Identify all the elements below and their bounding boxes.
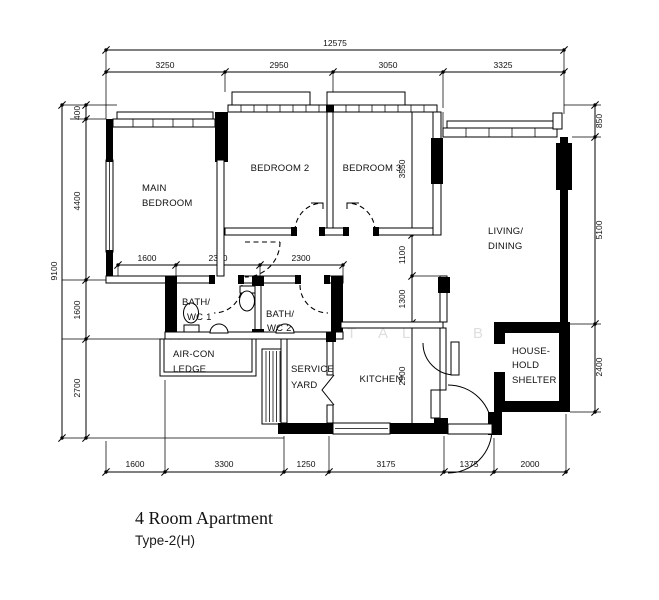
door-arc-entrance-upper [448,385,492,429]
window-band-living [443,128,557,137]
dim-left-1: 400 [72,106,82,120]
door-arc-bath2 [300,285,328,313]
floorplan-svg: 12575 3250 2950 3050 3325 9100 400 4400 … [0,0,659,600]
window-sill-main [117,112,213,119]
window-band-main [113,119,215,127]
room-label-bath-wc-1: WC 1 [187,312,212,323]
dim-bottom-3: 1250 [297,459,316,469]
room-label-bedroom-2: BEDROOM 2 [251,163,310,174]
room-label-household-shelter: HOUSE- [512,346,550,357]
dim-top-4: 3325 [494,60,513,70]
dim-bottom-4: 3175 [377,459,396,469]
door-leaf-entrance [448,424,492,434]
title-block: 4 Room Apartment Type-2(H) [135,508,273,548]
dim-inner-1: 1600 [138,253,157,263]
dim-left-2: 4400 [72,191,82,210]
floorplan-page: 12575 3250 2950 3050 3325 9100 400 4400 … [0,0,659,600]
dim-top-1: 3250 [156,60,175,70]
door-arc-shelter [423,343,455,375]
door-leaf-shelter [451,342,459,375]
room-label-aircon-ledge: LEDGE [173,364,206,375]
dim-top-overall: 12575 [323,38,347,48]
room-label-bath-wc-2: WC 2 [267,323,292,334]
plan-title: 4 Room Apartment [135,508,273,528]
room-label-bath-wc-2: BATH/ [266,309,294,320]
door-arc-bath1 [214,285,242,313]
room-label-kitchen: KITCHEN [359,374,402,385]
window-stub-right [553,113,562,129]
room-label-main-bedroom: BEDROOM [142,198,193,209]
room-label-living-dining: DINING [488,241,522,252]
window-ext-bed2 [232,92,310,105]
dim-bottom-6: 2000 [521,459,540,469]
room-label-bedroom-3: BEDROOM 3 [343,163,402,174]
door-bifold-service-yard [322,375,334,405]
toilet-bath2 [240,291,255,311]
room-label-main-bedroom: MAIN [142,183,167,194]
door-arc-main-bedroom [245,242,280,277]
door-arc-bedroom3 [347,203,375,231]
dim-left-3: 1600 [72,300,82,319]
window-ext-bed3 [327,92,405,105]
dim-top-3: 3050 [379,60,398,70]
room-label-bath-wc-1: BATH/ [182,297,210,308]
dim-bottom-2: 3300 [215,459,234,469]
room-label-living-dining: LIVING/ [488,226,523,237]
room-label-service-yard: YARD [291,380,318,391]
door-leaf-kitchen [431,390,440,418]
room-label-household-shelter: HOLD [512,360,539,371]
dim-top-2: 2950 [270,60,289,70]
dim-right-3: 2400 [594,357,604,376]
door-arc-bedroom2 [295,203,323,231]
plan-subtitle: Type-2(H) [135,533,195,548]
watermark-letter: B [473,325,483,342]
dim-mid-3: 1300 [397,289,407,308]
dim-left-overall: 9100 [49,261,59,280]
dim-right-1: 850 [594,114,604,128]
dim-left-4: 2700 [72,378,82,397]
room-label-service-yard: SERVICE [291,364,334,375]
basin-bath1 [210,324,228,333]
dim-bottom-1: 1600 [126,459,145,469]
window-sill-living [447,121,555,128]
room-label-aircon-ledge: AIR-CON [173,349,215,360]
dim-mid-2: 1100 [397,246,407,265]
dim-inner-3: 2300 [292,253,311,263]
dim-right-2: 5100 [594,220,604,239]
room-label-household-shelter: SHELTER [512,375,557,386]
